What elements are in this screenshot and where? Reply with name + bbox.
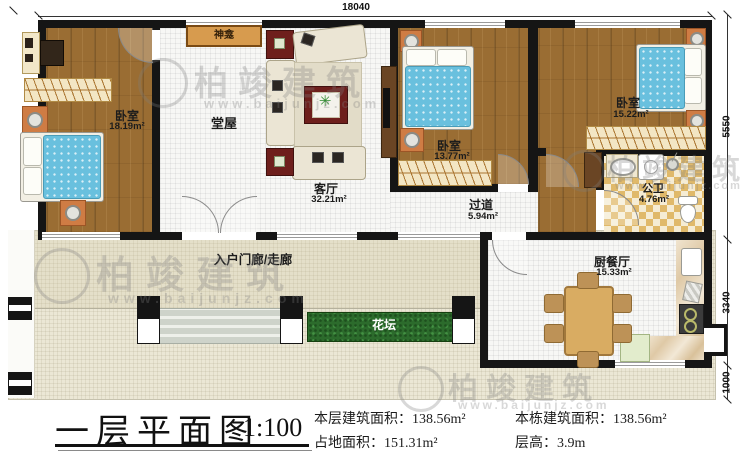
main-door-opening (182, 232, 256, 240)
window-bedroom1-south (42, 232, 120, 240)
pillow (23, 137, 42, 166)
dresser (584, 152, 602, 188)
wardrobe (586, 126, 706, 150)
side-table-lamp (274, 38, 285, 49)
stat-label: 层高： (515, 436, 557, 451)
stat-floor-height: 层高：3.9m (515, 432, 585, 452)
porch-column-base (137, 318, 160, 344)
pillow (437, 49, 467, 66)
dim-right-value: 1000 (722, 363, 733, 403)
porch-column-base (280, 318, 303, 344)
window-bedroom3 (575, 20, 680, 28)
lamp-icon (65, 205, 81, 221)
pier-marker (8, 372, 32, 395)
lamp-icon (404, 132, 420, 148)
dim-line-right (727, 15, 728, 400)
cushion (312, 152, 324, 163)
wall-bedroom2-bedroom3 (528, 20, 538, 192)
stat-label: 本栋建筑面积： (515, 412, 613, 427)
kitchen-door-opening (492, 232, 526, 240)
cushion (332, 152, 344, 163)
stat-label: 本层建筑面积： (314, 412, 412, 427)
speaker (25, 54, 33, 62)
kitchen-counter-corner (648, 336, 704, 360)
dim-tick (9, 6, 17, 14)
mattress (43, 135, 101, 199)
wardrobe (24, 78, 112, 102)
side-table-lamp (274, 156, 285, 167)
wall-bedroom1-hall (152, 20, 160, 30)
room-area: 13.77m² (419, 152, 485, 162)
pier-marker (8, 297, 32, 320)
dim-top-value: 18040 (332, 2, 380, 13)
stat-value: 3.9m (557, 436, 585, 451)
pillow (406, 49, 436, 66)
speaker (25, 38, 33, 48)
washing-machine-drum (644, 160, 658, 174)
kitchen-sink (681, 248, 702, 276)
room-area: 15.22m² (598, 110, 664, 120)
room-area: 15.33m² (582, 268, 646, 278)
entry-steps (152, 308, 282, 344)
room-label: 过道 (451, 199, 511, 211)
room-area: 18.19m² (97, 122, 157, 132)
stat-value: 138.56m² (412, 412, 466, 427)
room-label: 卧室 (598, 97, 658, 109)
porch-column (137, 296, 160, 318)
window-bedroom2 (425, 20, 505, 28)
floor-plan: 花坛 (0, 0, 750, 469)
pillow (684, 48, 702, 76)
wall-kitchen-left (480, 232, 488, 368)
wardrobe (398, 160, 492, 186)
plant-icon: ✳ (317, 94, 333, 110)
porch-column (452, 296, 475, 318)
wall-bedroom3-stub (538, 148, 546, 156)
window-hall-south (277, 232, 357, 240)
pillow (684, 77, 702, 104)
wall-bedroom1-hall (152, 60, 160, 232)
room-area: 5.94m² (451, 212, 515, 222)
dim-right-value: 3340 (722, 283, 733, 323)
window-corridor-south (398, 232, 480, 240)
title-underline-thin (58, 450, 312, 451)
pillow (23, 167, 42, 195)
dining-chair (612, 294, 632, 313)
shrine-label: 神龛 (186, 30, 262, 42)
room-area: 4.76m² (623, 195, 685, 205)
room-label: 堂屋 (194, 118, 254, 130)
porch-column-base (452, 318, 475, 344)
cushion (272, 102, 283, 113)
dining-chair (612, 324, 632, 343)
dim-line-top (38, 16, 712, 17)
tv (383, 88, 390, 128)
mattress (405, 66, 471, 127)
sink (610, 158, 636, 176)
wall-bottom (38, 232, 712, 240)
stat-ground-area: 占地面积：151.31m² (314, 432, 438, 452)
stat-floor-area: 本层建筑面积：138.56m² (314, 408, 466, 428)
lamp-icon (27, 112, 43, 128)
cushion (272, 80, 283, 91)
title-underline (55, 444, 309, 447)
porch-walkway (10, 232, 480, 308)
stat-building-area: 本栋建筑面积：138.56m² (515, 408, 667, 428)
flower-bed-label: 花坛 (354, 319, 414, 331)
stat-value: 138.56m² (613, 412, 667, 427)
stat-value: 151.31m² (384, 436, 438, 451)
room-area: 32.21m² (296, 195, 362, 205)
dining-chair (577, 351, 599, 368)
dining-chair (544, 294, 564, 313)
dresser (40, 40, 64, 66)
porch-column (280, 296, 303, 318)
stat-label: 占地面积： (314, 436, 384, 451)
sofa-bottom (292, 146, 366, 180)
dining-chair (544, 324, 564, 343)
porch-label: 入户门廊/走廊 (193, 254, 313, 266)
dining-table (564, 286, 614, 356)
plan-scale: 1:100 (243, 413, 302, 443)
dim-right-value: 5550 (722, 107, 733, 147)
stove-burner (684, 320, 697, 333)
